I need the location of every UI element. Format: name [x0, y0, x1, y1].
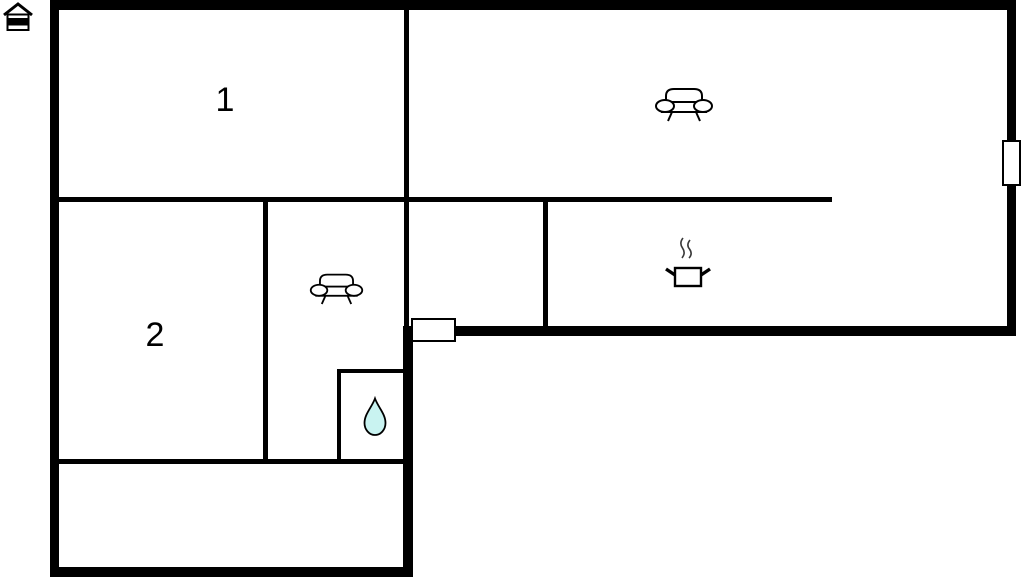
- wall-outer-top: [50, 0, 1016, 10]
- wall-bathroom-top: [337, 369, 405, 373]
- sofa-icon-living: [653, 82, 715, 124]
- sofa-icon-small-room: [308, 268, 365, 307]
- house-logo-icon: [2, 2, 34, 32]
- wall-partition-horizontal-main: [50, 197, 832, 202]
- wall-outer-bottom: [50, 567, 413, 577]
- wall-partition-bottom-room: [50, 459, 405, 464]
- room-label-1: 1: [216, 83, 235, 117]
- water-drop-shape: [365, 399, 386, 436]
- wall-bathroom-left: [337, 369, 341, 464]
- marker-window-right-wall: [1002, 140, 1021, 186]
- wall-partition-room1-living: [404, 0, 409, 330]
- cooking-pot-icon: [662, 236, 712, 292]
- floorplan: 1 2: [0, 0, 1024, 577]
- marker-door-mid-wall: [411, 318, 456, 342]
- wall-thick-mid-vertical: [403, 326, 413, 577]
- wall-thick-mid-horizontal: [405, 326, 1016, 336]
- room-label-2: 2: [146, 318, 165, 352]
- wall-partition-hall-kitchen: [543, 197, 548, 330]
- wall-outer-left: [50, 0, 59, 577]
- water-drop-icon: [360, 396, 390, 439]
- wall-partition-room2-sofa: [263, 197, 268, 464]
